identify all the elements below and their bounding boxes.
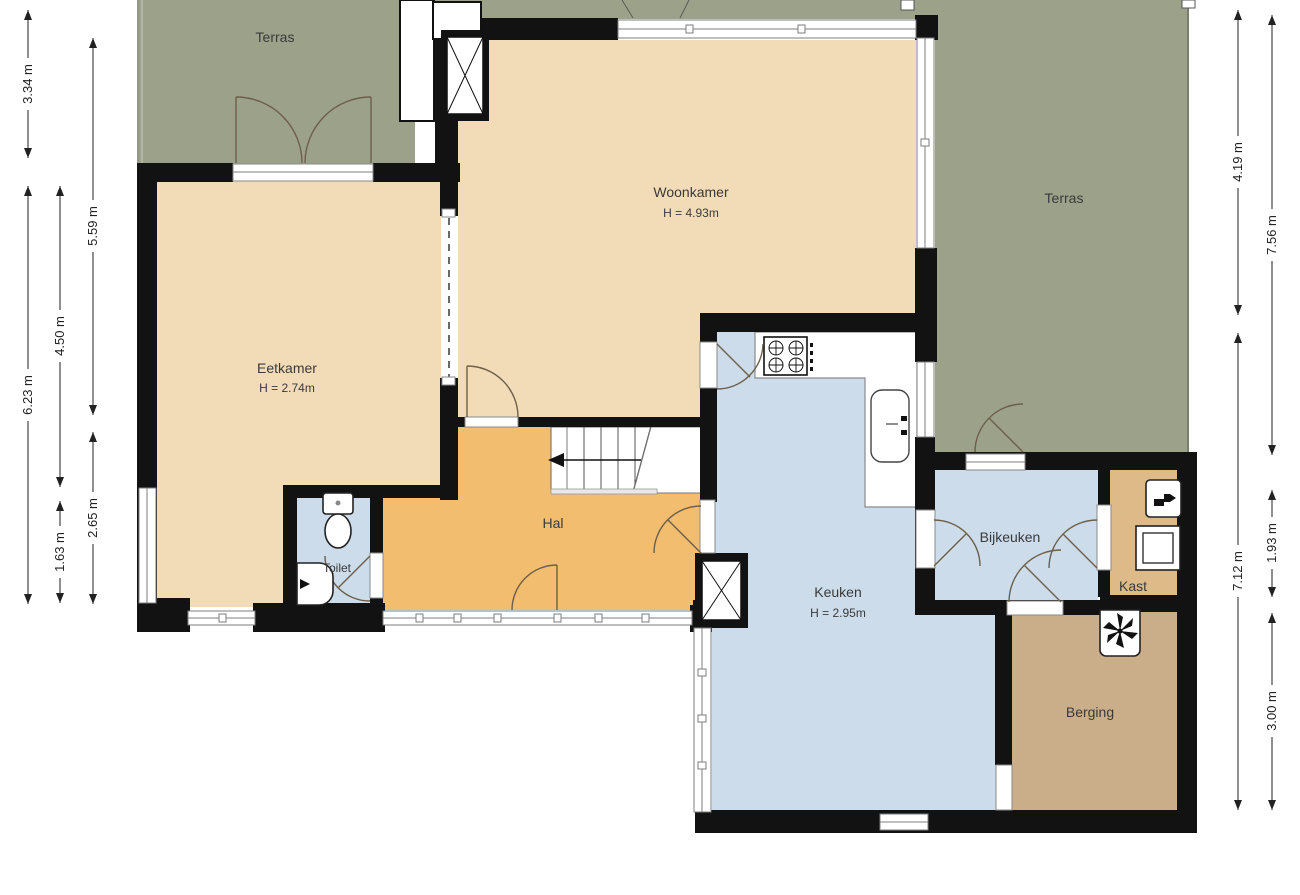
kitchen-sink-icon xyxy=(871,390,909,462)
room-label-keuken: Keuken xyxy=(814,584,861,600)
threshold-toilet xyxy=(370,553,383,598)
window-eetkamer-left xyxy=(139,488,156,603)
svg-text:1.63 m: 1.63 m xyxy=(52,532,67,572)
threshold-woonkamer-hal xyxy=(465,417,518,427)
dimension-4-50: 4.50 m xyxy=(51,186,69,487)
room-label-eetkamer: Eetkamer xyxy=(257,360,317,376)
room-height-keuken: H = 2.95m xyxy=(810,606,866,620)
room-height-woonkamer: H = 4.93m xyxy=(663,206,719,220)
room-label-kast: Kast xyxy=(1119,578,1147,594)
toilet-icon xyxy=(323,493,353,548)
room-height-eetkamer: H = 2.74m xyxy=(259,381,315,395)
flue-x-icon xyxy=(447,37,483,114)
svg-text:7.12 m: 7.12 m xyxy=(1230,551,1245,591)
dimension-1-63: 1.63 m xyxy=(51,501,69,603)
ventilation-fan-icon xyxy=(1100,610,1140,656)
dimension-lines-left: 3.34 m 6.23 m 4.50 m 1.63 m 5.59 m 2.65 … xyxy=(19,10,102,604)
svg-text:4.50 m: 4.50 m xyxy=(52,316,67,356)
room-label-berging: Berging xyxy=(1066,704,1114,720)
dimension-lines-right: 4.19 m 7.12 m 7.56 m 1.93 m 3.00 m xyxy=(1229,10,1281,810)
dimension-3-34: 3.34 m xyxy=(19,10,37,158)
washer-icon xyxy=(1136,526,1180,570)
svg-text:2.65 m: 2.65 m xyxy=(85,498,100,538)
boiler-icon xyxy=(1146,480,1181,517)
dimension-2-65: 2.65 m xyxy=(84,432,102,604)
floor-plan-canvas: Terras Terras Woonkamer H = 4.93m Eetkam… xyxy=(0,0,1300,890)
threshold-keuken-berging xyxy=(996,765,1012,810)
svg-text:3.00 m: 3.00 m xyxy=(1264,691,1279,731)
terrace-object-cutoff xyxy=(1182,0,1195,8)
threshold-keuken-bijkeuken xyxy=(916,510,935,568)
svg-text:1.93 m: 1.93 m xyxy=(1264,523,1279,563)
room-label-terras-right: Terras xyxy=(1045,190,1084,206)
window-woonkamer-top xyxy=(618,20,916,38)
dimension-1-93: 1.93 m xyxy=(1263,490,1281,597)
room-label-terras-left: Terras xyxy=(256,29,295,45)
svg-text:7.56 m: 7.56 m xyxy=(1264,215,1279,255)
terrace-object-cutoff xyxy=(901,0,914,10)
window-woonkamer-right xyxy=(917,38,934,248)
room-label-toilet: Toilet xyxy=(323,561,352,575)
dimension-7-56: 7.56 m xyxy=(1263,15,1281,455)
room-label-hal: Hal xyxy=(542,515,563,531)
window-keuken-right xyxy=(917,362,934,437)
dimension-7-12: 7.12 m xyxy=(1229,333,1247,810)
svg-text:6.23 m: 6.23 m xyxy=(20,375,35,415)
terrace-left xyxy=(138,0,415,164)
svg-text:5.59 m: 5.59 m xyxy=(85,206,100,246)
dimension-6-23: 6.23 m xyxy=(19,186,37,604)
threshold-bijkeuken-berging xyxy=(1007,601,1063,615)
svg-text:4.19 m: 4.19 m xyxy=(1230,142,1245,182)
dimension-5-59: 5.59 m xyxy=(84,38,102,415)
threshold-woonkamer-keuken xyxy=(700,342,717,388)
dimension-3-00: 3.00 m xyxy=(1263,613,1281,810)
flue-x-icon xyxy=(702,561,741,620)
stairs xyxy=(548,427,703,494)
room-label-woonkamer: Woonkamer xyxy=(653,184,729,200)
window-eetkamer-bottom xyxy=(188,611,255,625)
floor-plan: Terras Terras Woonkamer H = 4.93m Eetkam… xyxy=(0,0,1300,890)
window-hal-bottom xyxy=(383,611,692,625)
svg-text:3.34 m: 3.34 m xyxy=(20,64,35,104)
cooktop-icon xyxy=(764,337,813,375)
window-keuken-bottom xyxy=(880,814,928,830)
dimension-4-19: 4.19 m xyxy=(1229,10,1247,315)
sliding-door-eetkamer-woonkamer xyxy=(441,209,457,385)
threshold-keuken-hal xyxy=(700,500,715,553)
window-keuken-left xyxy=(694,628,711,812)
threshold-bijkeuken-kast xyxy=(1097,505,1111,570)
room-label-bijkeuken: Bijkeuken xyxy=(980,529,1041,545)
